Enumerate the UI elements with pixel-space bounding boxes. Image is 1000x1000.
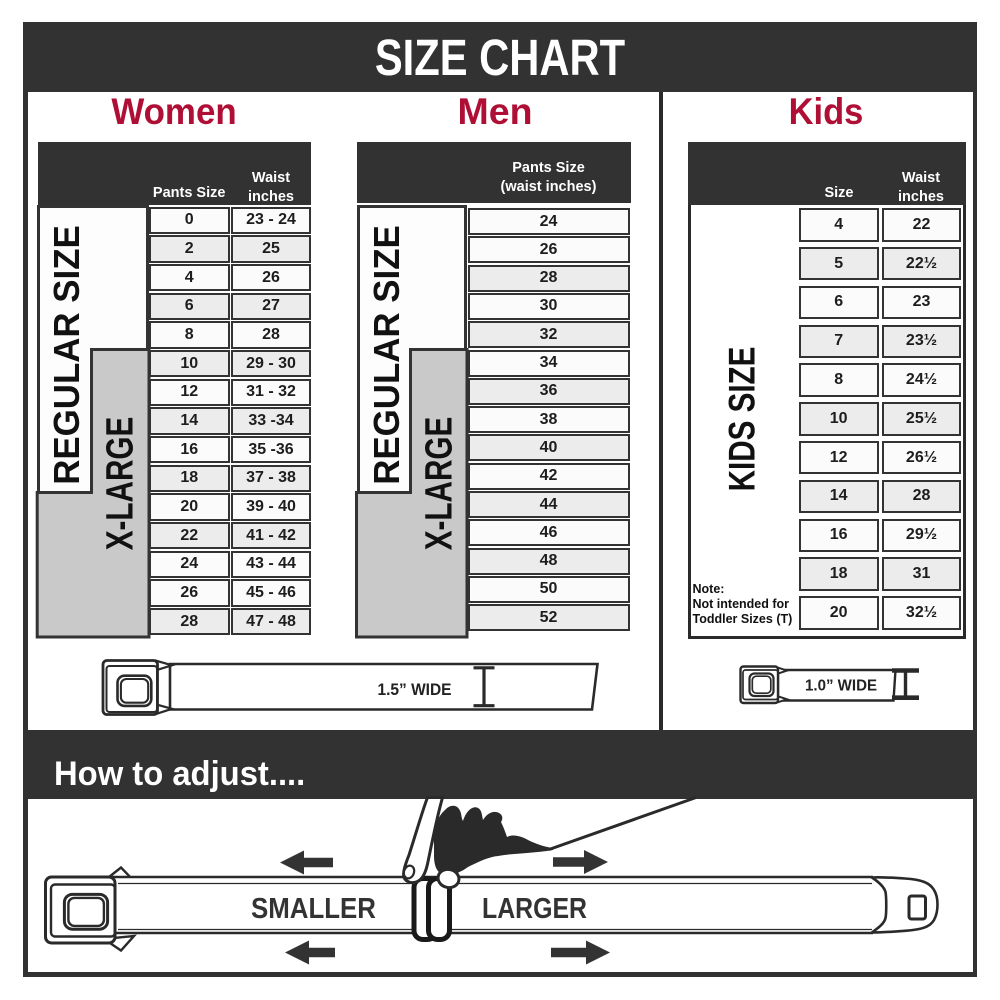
svg-text:LARGER: LARGER [482, 893, 587, 925]
svg-text:SMALLER: SMALLER [251, 893, 376, 925]
